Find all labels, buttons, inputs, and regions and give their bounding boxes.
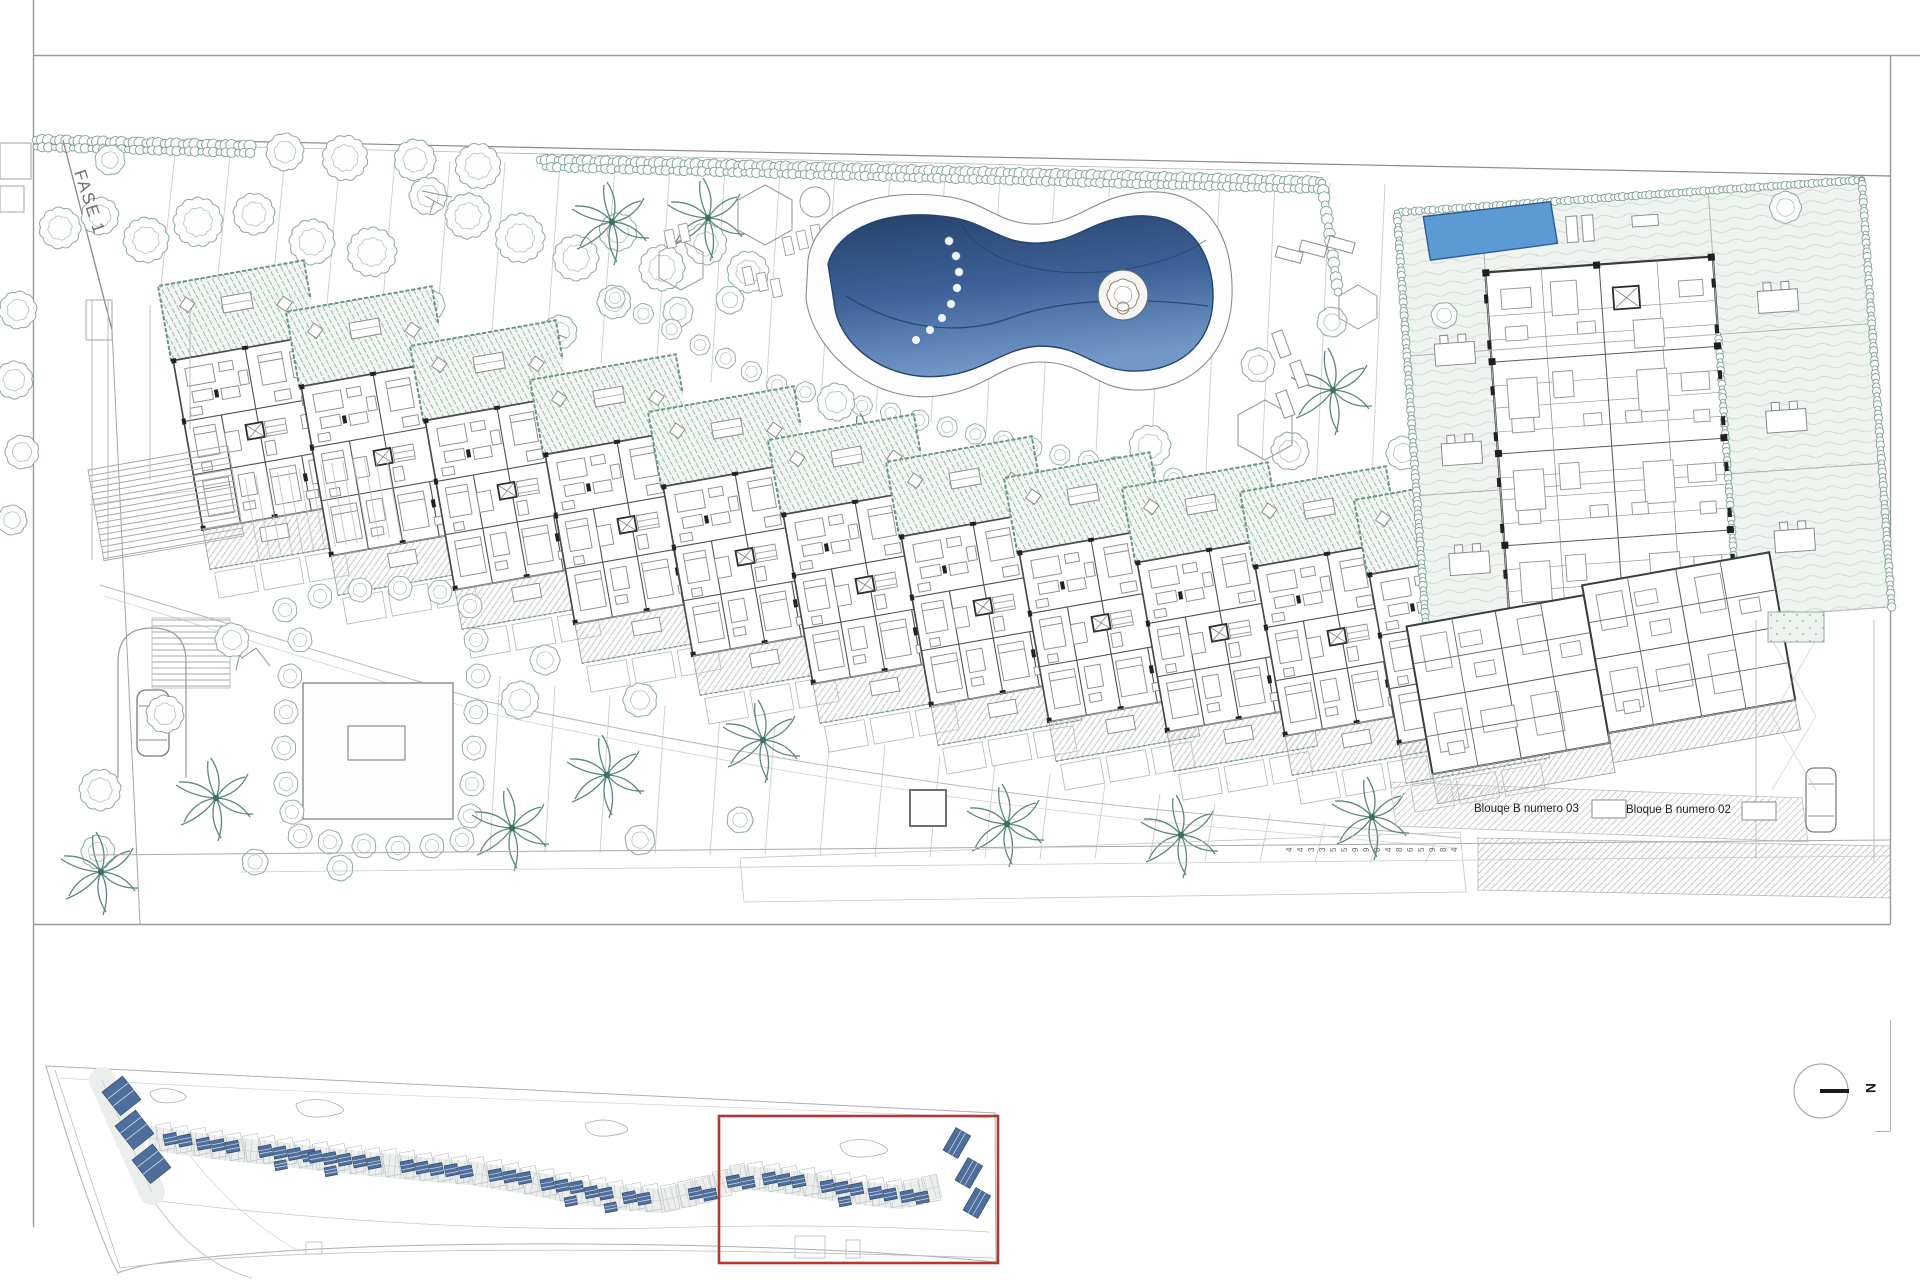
svg-text:4: 4 (1296, 847, 1305, 852)
svg-text:5: 5 (1340, 847, 1349, 852)
svg-text:8: 8 (1373, 847, 1382, 852)
svg-text:9: 9 (1428, 847, 1437, 852)
svg-text:Blouqe B numero 03: Blouqe B numero 03 (1474, 803, 1579, 815)
svg-text:4: 4 (1450, 847, 1459, 852)
svg-text:Bloque B numero 02: Bloque B numero 02 (1626, 804, 1731, 816)
svg-text:4: 4 (1384, 847, 1393, 852)
svg-text:3: 3 (1318, 847, 1327, 852)
svg-text:N: N (1863, 1083, 1879, 1093)
svg-text:5: 5 (1417, 847, 1426, 852)
svg-text:9: 9 (1362, 847, 1371, 852)
svg-text:8: 8 (1395, 847, 1404, 852)
svg-text:8: 8 (1439, 847, 1448, 852)
svg-text:6: 6 (1406, 847, 1415, 852)
svg-text:4: 4 (1285, 847, 1294, 852)
svg-text:5: 5 (1329, 847, 1338, 852)
svg-text:9: 9 (1351, 847, 1360, 852)
svg-text:3: 3 (1307, 847, 1316, 852)
